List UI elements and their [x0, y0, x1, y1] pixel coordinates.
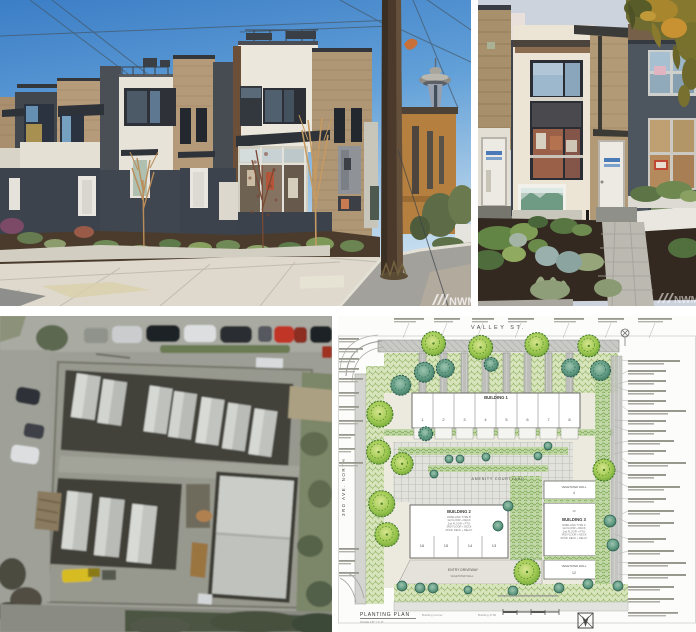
- svg-text:BUILDING 3: BUILDING 3: [562, 517, 586, 522]
- svg-text:16: 16: [420, 543, 425, 548]
- svg-text:10: 10: [572, 509, 576, 513]
- svg-text:ROOF DECK + DELAY: ROOF DECK + DELAY: [446, 528, 473, 532]
- svg-text:VEGETATED WALL: VEGETATED WALL: [450, 574, 474, 578]
- svg-text:13: 13: [492, 543, 497, 548]
- svg-text:4: 4: [573, 491, 575, 495]
- svg-text:NWM: NWM: [674, 295, 696, 306]
- svg-text:14: 14: [468, 543, 473, 548]
- svg-text:12: 12: [572, 571, 576, 575]
- svg-text:PLANTING PLAN: PLANTING PLAN: [360, 612, 410, 618]
- svg-text:15: 15: [444, 543, 449, 548]
- svg-text:AMENITY COURTYARD: AMENITY COURTYARD: [472, 477, 525, 481]
- svg-text:Building 4700: Building 4700: [478, 613, 497, 617]
- svg-text:ROOF DECK + DELAY: ROOF DECK + DELAY: [561, 536, 588, 540]
- svg-text:BUILDING 1: BUILDING 1: [484, 395, 508, 400]
- svg-text:SCALE 1/8" = 1'-0": SCALE 1/8" = 1'-0": [360, 620, 384, 624]
- svg-text:3RD AVE. NORTH: 3RD AVE. NORTH: [341, 458, 346, 516]
- svg-text:BUILDING 2: BUILDING 2: [447, 509, 471, 514]
- svg-text:VALLEY ST.: VALLEY ST.: [471, 325, 526, 331]
- svg-text:VEGETATED WALL: VEGETATED WALL: [562, 564, 587, 568]
- svg-text:NWM: NWM: [449, 296, 471, 306]
- svg-text:VEGETATED WALL: VEGETATED WALL: [562, 485, 587, 489]
- svg-text:Building Corner: Building Corner: [422, 613, 443, 617]
- svg-text:ENTRY DRIVEWAY: ENTRY DRIVEWAY: [448, 568, 479, 572]
